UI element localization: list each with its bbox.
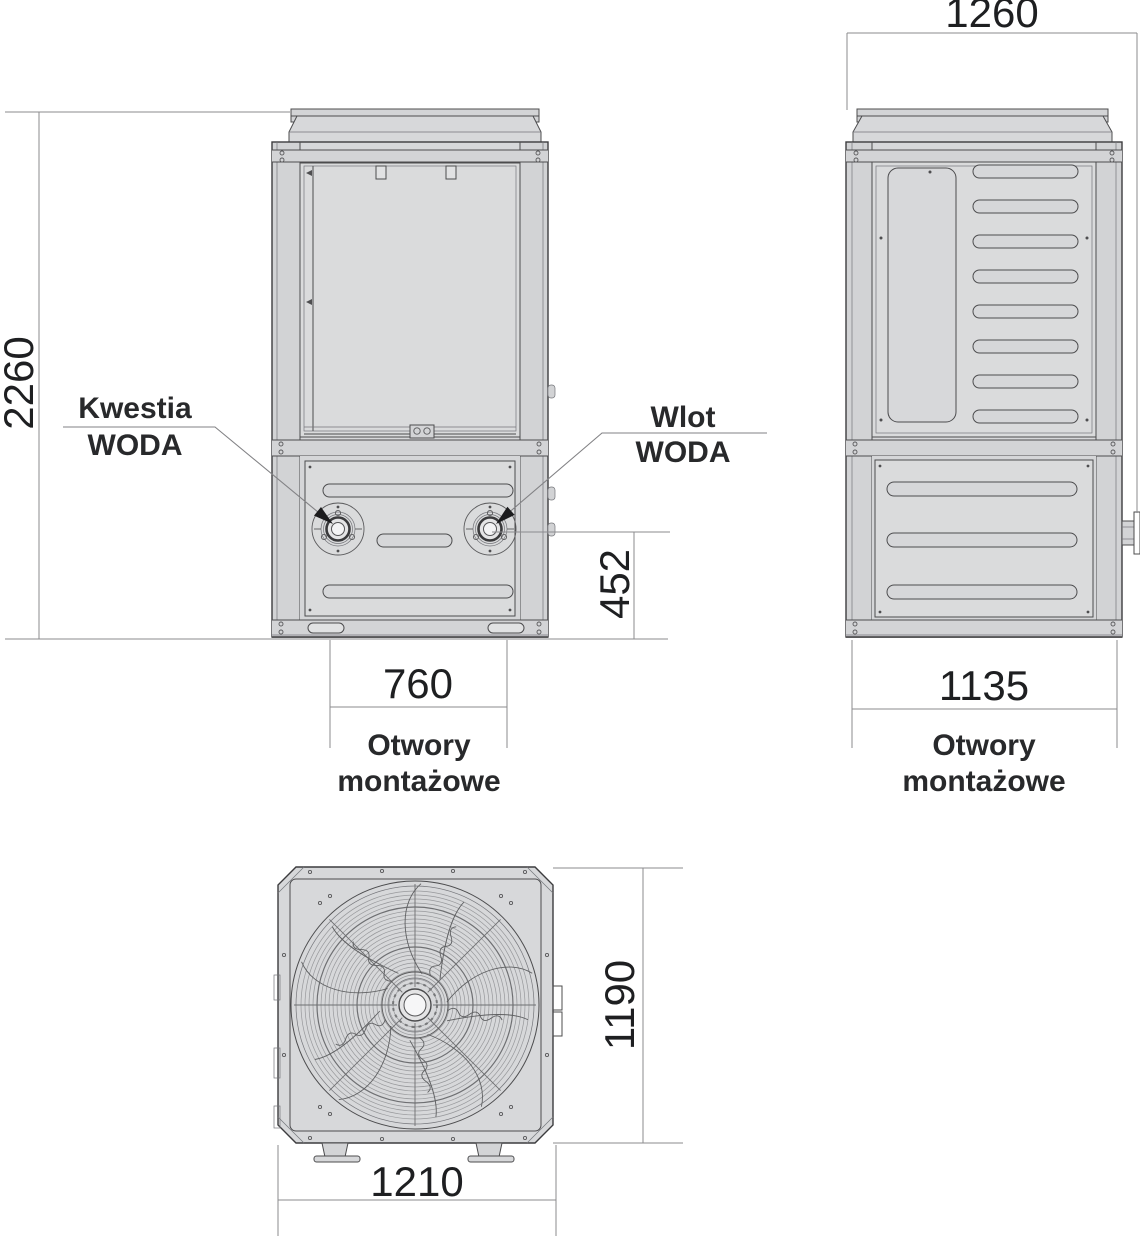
front-top-cap (289, 109, 541, 142)
side-lower-panel (872, 456, 1096, 620)
side-top-cap (853, 109, 1112, 142)
top-view (274, 867, 562, 1162)
front-water-height-dim-text: 452 (591, 549, 638, 619)
water-inlet-label-line2: WODA (636, 436, 731, 469)
front-mounting-label-line1: Otwory (367, 729, 471, 762)
side-base-rail (846, 620, 1122, 637)
front-divider-band (272, 440, 548, 456)
front-side-stubs (548, 385, 555, 536)
side-mounting-label-line2: montażowe (902, 765, 1065, 798)
side-view (846, 109, 1140, 637)
technical-drawing-page: 2260 452 760 Otwory montażowe Kwestia WO… (0, 0, 1140, 1239)
front-mounting-dim-text: 760 (383, 660, 453, 707)
front-mounting-label-line2: montażowe (337, 765, 500, 798)
top-depth-dimension: 1190 (553, 868, 683, 1143)
side-pipe-stub (1122, 512, 1140, 554)
front-upper-panel (300, 163, 520, 438)
side-divider-band (846, 440, 1122, 456)
front-base-rail (272, 620, 548, 637)
heat-pump-dimension-drawing: 2260 452 760 Otwory montażowe Kwestia WO… (0, 0, 1140, 1239)
water-outlet-label-line2: WODA (88, 429, 183, 462)
front-mounting-dimension: 760 Otwory montażowe (330, 640, 507, 798)
side-mounting-label-line1: Otwory (932, 729, 1036, 762)
side-mounting-dimension: 1135 Otwory montażowe (852, 640, 1117, 798)
top-width-dim-text: 1210 (370, 1158, 463, 1205)
front-height-dim-text: 2260 (0, 336, 42, 429)
top-depth-dim-text: 1190 (596, 960, 643, 1050)
front-view (272, 109, 555, 637)
water-outlet-label-line1: Kwestia (78, 392, 192, 425)
side-mounting-dim-text: 1135 (939, 662, 1029, 709)
water-inlet-label-line1: Wlot (651, 401, 716, 434)
side-width-dim-text: 1260 (945, 0, 1038, 36)
